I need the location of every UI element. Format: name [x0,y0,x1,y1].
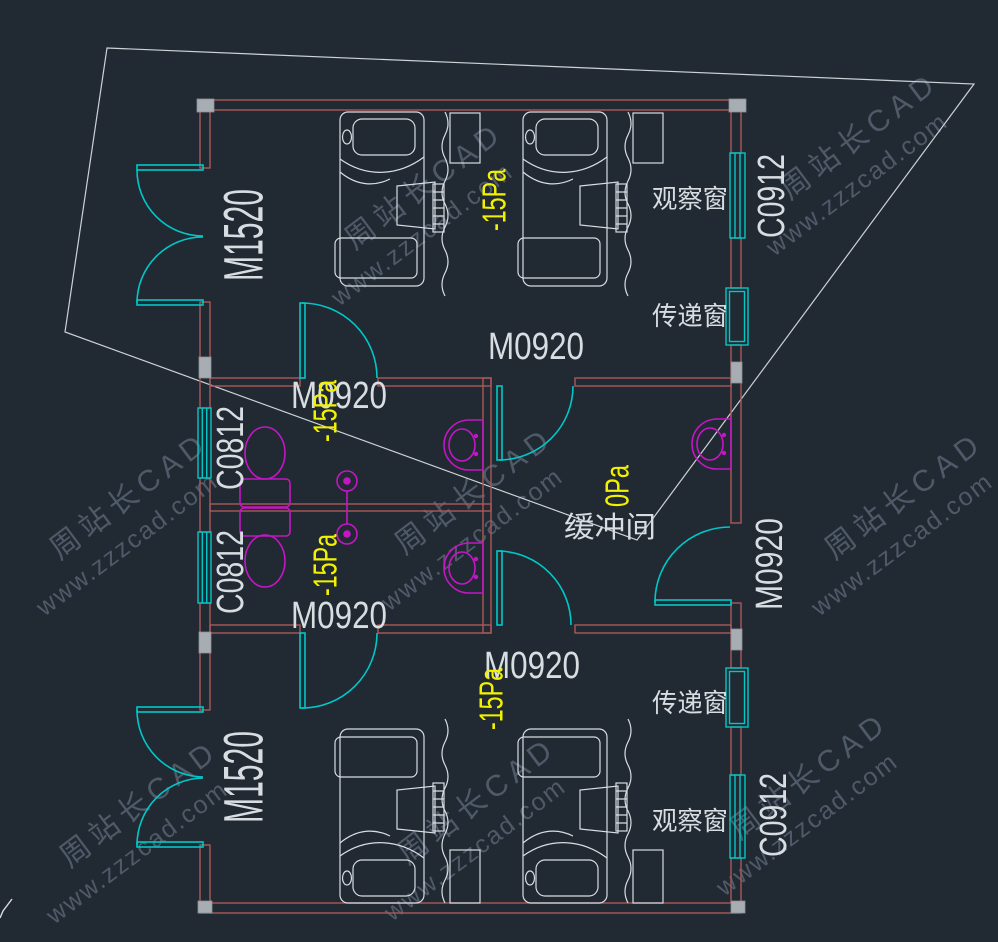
bed [518,729,627,903]
columns [197,99,746,913]
column [731,362,742,383]
bed [335,729,444,903]
door-buffer-exit [655,527,731,605]
wall-right [731,727,741,775]
sink [692,419,731,469]
curtain [625,112,631,296]
label-pressure-bath-lower: -15Pa [307,534,344,596]
label-window-code-top: C0912 [751,154,793,238]
wall-top [200,100,741,110]
label-inner-door-ward-top: M0920 [488,326,584,368]
wall-interior [575,625,731,633]
column [729,99,746,112]
label-window-code-bath-upper: C0812 [210,406,252,490]
door-m1520-top [137,165,203,305]
labels: M1520 -15Pa 观察窗 C0912 传递窗 M0920 M0920 -1… [210,154,795,857]
wall-interior [378,625,491,633]
column [731,629,742,650]
wall-left [200,845,210,903]
wall-left [200,302,210,408]
transfer-window-top [726,288,748,345]
curtain [442,719,448,903]
label-pressure-ward-top: -15Pa [476,169,513,231]
column [199,632,211,653]
label-pressure-buffer: 0Pa [599,465,636,507]
wall-right [731,238,741,288]
wall-right [731,858,741,903]
column [198,901,212,913]
label-pressure-bath-upper: -15Pa [307,380,344,442]
floor-drains [337,471,357,544]
wall-interior [210,378,300,386]
wall-interior [483,378,491,633]
wall-left [200,110,210,168]
wall-bottom [200,903,741,913]
door-m1520-bottom [137,707,203,847]
label-entry-door-bottom: M1520 [212,731,275,823]
column [199,357,211,378]
wall-left [200,603,210,710]
bed [335,112,444,286]
label-transfer-window-bottom: 传递窗 [652,688,728,718]
observation-window-top [730,153,745,238]
label-observation-window-bottom: 观察窗 [652,806,728,836]
wall-right [731,110,741,153]
wall-interior [210,625,300,633]
column [731,901,745,913]
label-buffer-room: 缓冲间 [564,511,656,544]
wall-interior [378,378,491,386]
sink [444,543,483,593]
label-entry-door-top: M1520 [212,189,275,281]
locker [450,850,480,903]
axis-marker [0,899,12,918]
label-exit-door-buffer: M0920 [749,518,791,610]
label-window-code-bath-lower: C0812 [210,530,252,614]
label-pressure-ward-bottom: -15Pa [473,668,510,730]
locker [450,113,480,163]
door-bath-upper [300,303,377,378]
door-bath-lower [300,633,377,708]
label-transfer-window-top: 传递窗 [652,301,728,331]
bed [518,112,627,286]
door-buffer-bottom [497,551,571,625]
cad-canvas: 周站长CAD www.zzzcad.com 周站长CAD www.zzzcad.… [0,0,998,942]
door-buffer-top [497,386,573,460]
floor-plan-svg: M1520 -15Pa 观察窗 C0912 传递窗 M0920 M0920 -1… [0,0,998,942]
label-window-code-bottom: C0912 [753,773,795,857]
windows [198,153,748,858]
column [197,99,214,112]
locker [633,850,663,903]
curtain [442,112,448,296]
transfer-window-bottom [726,668,748,727]
curtain [625,719,631,903]
label-door-bath-lower: M0920 [291,595,387,637]
observation-window-bottom [730,775,745,858]
label-observation-window-top: 观察窗 [652,184,728,214]
locker [633,113,663,163]
site-boundary-line [65,48,974,540]
wall-interior [575,378,731,386]
sink [444,420,483,470]
wall-left [200,478,210,532]
